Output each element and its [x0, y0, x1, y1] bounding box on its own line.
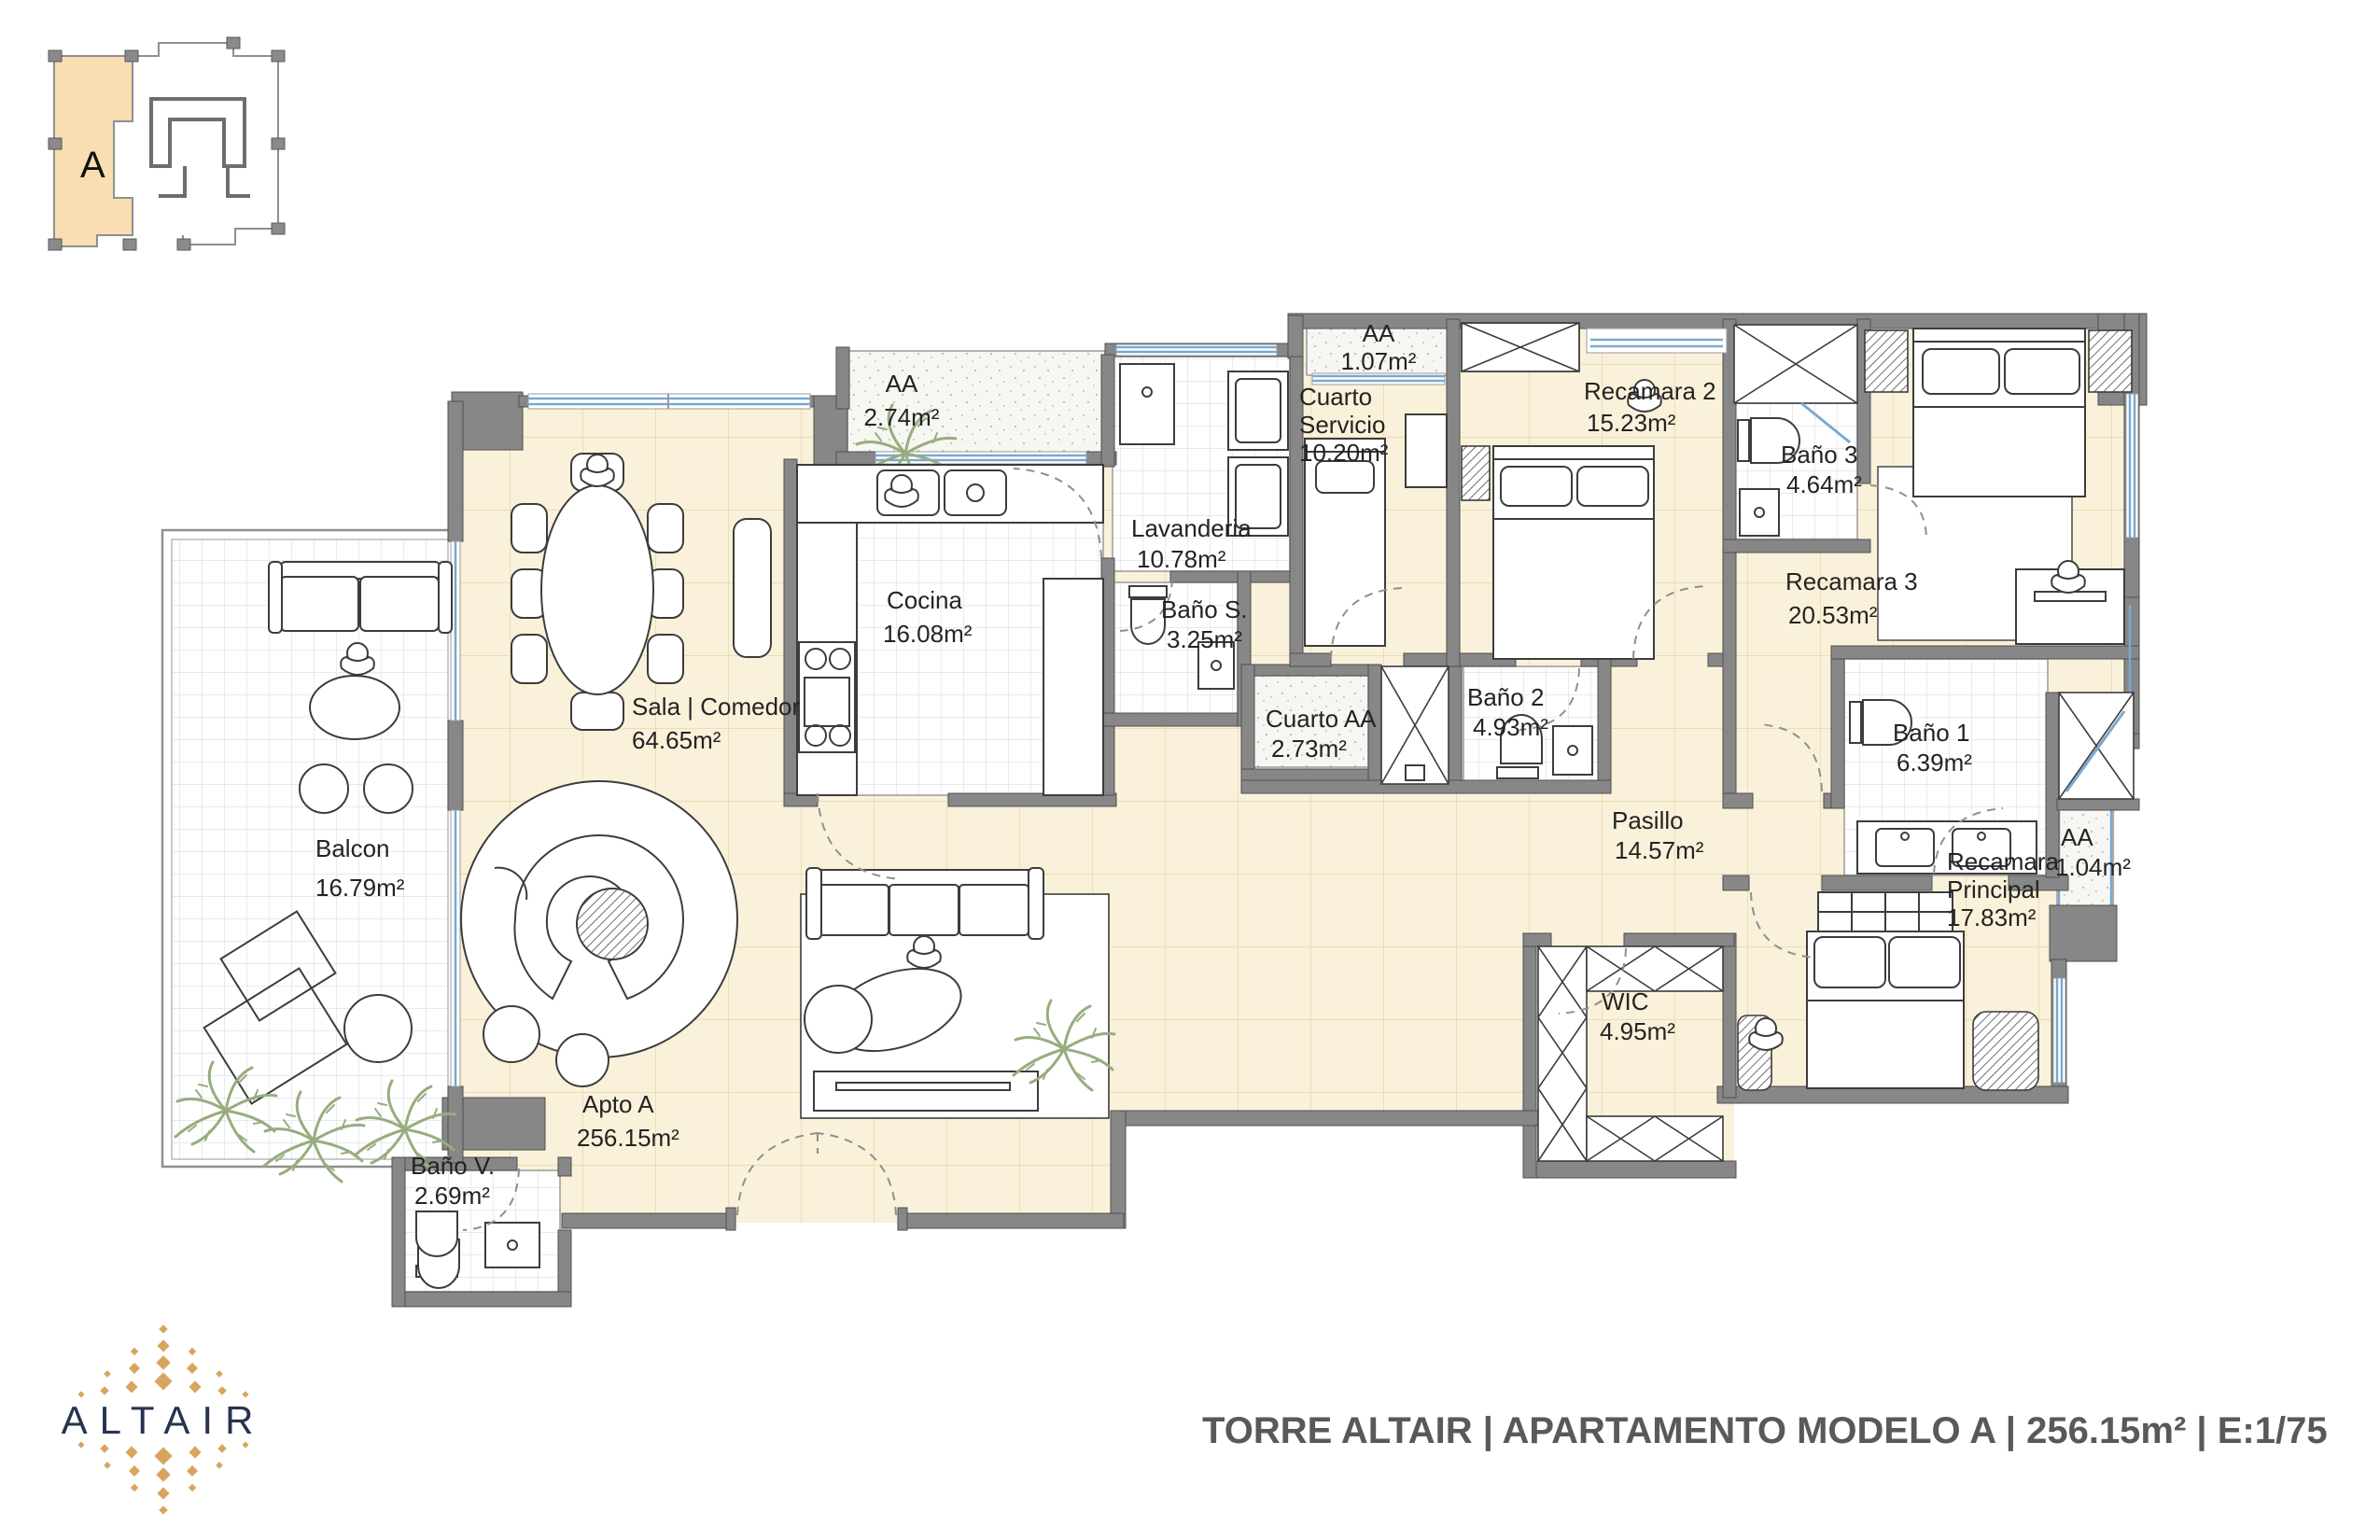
svg-text:4.95m²: 4.95m²	[1600, 1017, 1675, 1045]
svg-text:Baño S.: Baño S.	[1161, 595, 1248, 623]
svg-text:2.74m²: 2.74m²	[864, 403, 940, 431]
balcony-pouf-1	[300, 764, 348, 813]
svg-text:Recamara 3: Recamara 3	[1785, 567, 1918, 595]
svg-text:Recamara 2: Recamara 2	[1584, 377, 1716, 405]
shower-bano1	[2059, 693, 2134, 799]
balcony-sofa	[269, 562, 452, 633]
svg-text:Sala | Comedor: Sala | Comedor	[632, 693, 801, 721]
logo-text: ALTAIR	[62, 1398, 266, 1442]
svg-text:3.25m²: 3.25m²	[1167, 625, 1242, 653]
balcony-table	[310, 676, 399, 739]
master-headboard	[1818, 892, 1953, 931]
svg-text:AA: AA	[1363, 319, 1395, 347]
altair-logo: ALTAIR	[62, 1324, 266, 1515]
svg-text:20.53m²: 20.53m²	[1788, 601, 1878, 629]
floorplan-canvas: A	[0, 0, 2380, 1540]
key-plan-unit-letter: A	[80, 145, 105, 186]
shower-bano2	[1381, 666, 1449, 784]
svg-text:16.79m²: 16.79m²	[315, 874, 405, 902]
svg-text:AA: AA	[2061, 823, 2093, 851]
window-recamara3	[2126, 394, 2138, 538]
svg-text:Cuarto: Cuarto	[1299, 383, 1372, 411]
svg-text:Apto A: Apto A	[582, 1090, 654, 1118]
svg-text:Recamara: Recamara	[1947, 847, 2059, 875]
svg-text:1.07m²: 1.07m²	[1341, 347, 1417, 375]
window-master	[2053, 978, 2065, 1083]
plan-title: TORRE ALTAIR | APARTAMENTO MODELO A | 25…	[1202, 1410, 2328, 1451]
stove	[799, 642, 855, 752]
media-area	[801, 868, 1109, 1118]
svg-text:6.39m²: 6.39m²	[1897, 749, 1972, 777]
key-plan: A	[49, 37, 285, 250]
window-sala-top	[528, 394, 810, 409]
svg-text:4.93m²: 4.93m²	[1473, 713, 1548, 741]
footer: ALTAIR TORRE ALTAIR | APARTAMENTO MODELO…	[62, 1324, 2328, 1515]
svg-text:WIC: WIC	[1602, 987, 1649, 1015]
svg-text:10.78m²: 10.78m²	[1137, 545, 1226, 573]
svg-text:2.69m²: 2.69m²	[414, 1182, 490, 1210]
balcony-pouf-2	[364, 764, 413, 813]
svg-text:Servicio: Servicio	[1299, 411, 1385, 439]
svg-text:10.20m²: 10.20m²	[1299, 439, 1389, 467]
svg-text:Lavanderia: Lavanderia	[1131, 514, 1252, 542]
svg-text:4.64m²: 4.64m²	[1786, 470, 1862, 498]
svg-text:Cuarto AA: Cuarto AA	[1266, 705, 1377, 733]
svg-text:17.83m²: 17.83m²	[1947, 903, 2037, 931]
svg-text:15.23m²: 15.23m²	[1587, 409, 1676, 437]
svg-text:14.57m²: 14.57m²	[1615, 836, 1704, 864]
svg-text:Baño 2: Baño 2	[1467, 683, 1544, 711]
window-recamara2	[1587, 329, 1727, 353]
svg-text:2.73m²: 2.73m²	[1271, 735, 1347, 763]
sideboard	[734, 519, 771, 657]
svg-text:Cocina: Cocina	[887, 586, 962, 614]
svg-text:Pasillo: Pasillo	[1612, 806, 1684, 834]
svg-text:Baño V.: Baño V.	[411, 1152, 495, 1180]
svg-text:16.08m²: 16.08m²	[883, 620, 973, 648]
svg-text:Baño 3: Baño 3	[1781, 441, 1857, 469]
floor-plan: Balcon16.79m² Sala | Comedor64.65m² AA2.…	[162, 314, 2147, 1307]
svg-text:Balcon: Balcon	[315, 834, 390, 862]
svg-text:1.04m²: 1.04m²	[2055, 853, 2131, 881]
svg-text:256.15m²: 256.15m²	[577, 1124, 679, 1152]
window-laundry	[1116, 344, 1277, 356]
svg-text:Baño 1: Baño 1	[1893, 719, 1969, 747]
svg-text:Principal: Principal	[1947, 875, 2040, 903]
svg-text:64.65m²: 64.65m²	[632, 726, 721, 754]
svg-text:AA: AA	[886, 370, 918, 398]
